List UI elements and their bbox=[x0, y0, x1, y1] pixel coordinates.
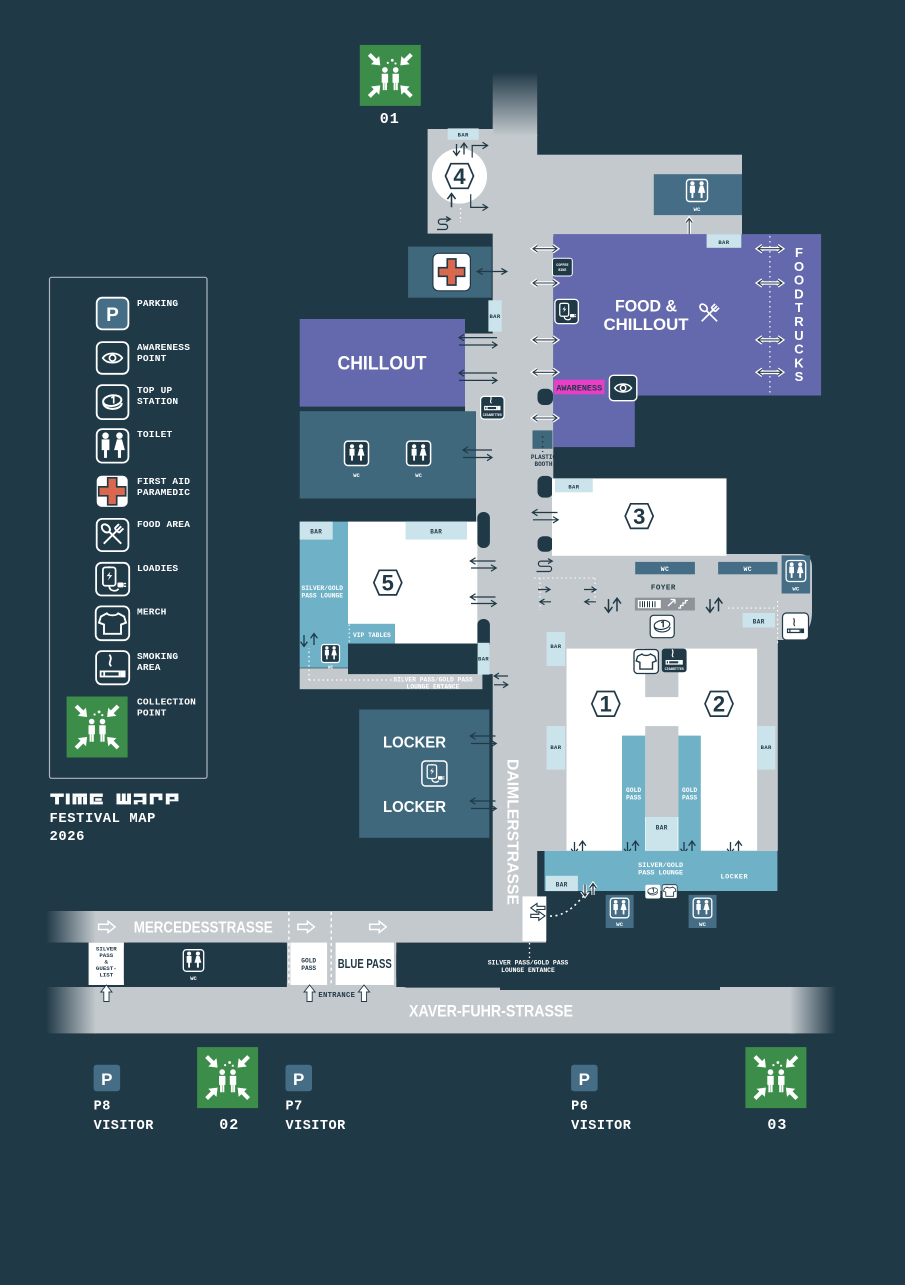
svg-text:BAR: BAR bbox=[753, 618, 765, 625]
svg-text:BAR: BAR bbox=[458, 132, 469, 139]
svg-text:BAR: BAR bbox=[550, 744, 561, 751]
svg-text:PARAMEDIC: PARAMEDIC bbox=[137, 487, 190, 498]
svg-text:P: P bbox=[101, 1070, 112, 1089]
svg-text:P8: P8 bbox=[94, 1100, 111, 1115]
svg-text:PASS: PASS bbox=[626, 794, 641, 801]
svg-text:BAR: BAR bbox=[310, 529, 322, 536]
svg-text:BAR: BAR bbox=[761, 744, 772, 751]
svg-text:PASS LOUNGE: PASS LOUNGE bbox=[638, 870, 683, 878]
svg-text:FOYER: FOYER bbox=[651, 584, 676, 592]
svg-text:O: O bbox=[794, 273, 804, 288]
svg-text:CIGARETTES: CIGARETTES bbox=[483, 413, 502, 417]
svg-text:WC: WC bbox=[699, 921, 706, 928]
svg-text:WC: WC bbox=[190, 975, 197, 982]
svg-text:POINT: POINT bbox=[137, 353, 167, 364]
svg-text:GOLD: GOLD bbox=[301, 958, 316, 965]
svg-text:SMOKING: SMOKING bbox=[137, 651, 178, 662]
svg-text:AWARENESS: AWARENESS bbox=[137, 342, 190, 353]
svg-text:02: 02 bbox=[219, 1117, 239, 1134]
svg-text:2: 2 bbox=[713, 692, 725, 717]
svg-text:BAR: BAR bbox=[478, 656, 489, 663]
svg-text:WC: WC bbox=[694, 206, 701, 213]
svg-text:VISITOR: VISITOR bbox=[94, 1119, 155, 1134]
svg-text:P: P bbox=[106, 305, 119, 326]
svg-text:POINT: POINT bbox=[137, 708, 167, 719]
svg-text:WC: WC bbox=[792, 586, 799, 593]
svg-text:GOLD: GOLD bbox=[682, 787, 697, 794]
svg-text:TOP UP: TOP UP bbox=[137, 385, 173, 396]
svg-text:T: T bbox=[795, 300, 803, 315]
svg-text:C: C bbox=[794, 342, 804, 357]
svg-text:P7: P7 bbox=[286, 1100, 303, 1115]
svg-text:LOADIES: LOADIES bbox=[137, 563, 178, 574]
svg-text:BAR: BAR bbox=[718, 239, 729, 246]
svg-text:VISITOR: VISITOR bbox=[286, 1119, 347, 1134]
svg-text:BLUE PASS: BLUE PASS bbox=[338, 956, 392, 971]
svg-text:WC: WC bbox=[328, 667, 334, 671]
svg-text:PASS LOUNGE: PASS LOUNGE bbox=[302, 593, 344, 600]
svg-text:MERCEDESSTRASSE: MERCEDESSTRASSE bbox=[134, 920, 273, 937]
svg-text:TOILET: TOILET bbox=[137, 429, 173, 440]
svg-text:CHILLOUT: CHILLOUT bbox=[604, 315, 690, 334]
svg-text:P: P bbox=[579, 1070, 590, 1089]
svg-text:P6: P6 bbox=[571, 1100, 588, 1115]
svg-text:XAVER-FUHR-STRASSE: XAVER-FUHR-STRASSE bbox=[409, 1003, 573, 1021]
svg-text:GOLD: GOLD bbox=[626, 787, 641, 794]
svg-text:5: 5 bbox=[382, 570, 394, 595]
svg-text:SILVER PASS/GOLD PASS: SILVER PASS/GOLD PASS bbox=[393, 676, 473, 683]
svg-text:AWARENESS: AWARENESS bbox=[556, 384, 602, 394]
svg-text:FOOD &: FOOD & bbox=[615, 297, 677, 316]
svg-text:STATION: STATION bbox=[137, 396, 178, 407]
svg-text:01: 01 bbox=[380, 111, 400, 128]
svg-text:K: K bbox=[794, 355, 804, 370]
svg-text:VISITOR: VISITOR bbox=[571, 1119, 632, 1134]
svg-text:CHILLOUT: CHILLOUT bbox=[338, 354, 427, 375]
svg-text:R: R bbox=[794, 314, 804, 329]
svg-text:FESTIVAL MAP: FESTIVAL MAP bbox=[50, 812, 157, 827]
svg-text:WC: WC bbox=[616, 921, 623, 928]
svg-text:PASS: PASS bbox=[682, 794, 697, 801]
svg-text:D: D bbox=[794, 286, 803, 301]
svg-text:F: F bbox=[795, 245, 803, 260]
svg-text:PLASTIC: PLASTIC bbox=[531, 454, 557, 461]
svg-text:WC: WC bbox=[353, 472, 360, 479]
svg-text:SILVER/GOLD: SILVER/GOLD bbox=[302, 585, 344, 592]
svg-text:4: 4 bbox=[453, 164, 466, 189]
svg-text:LOUNGE ENTANCE: LOUNGE ENTANCE bbox=[407, 684, 460, 691]
svg-text:2026: 2026 bbox=[50, 830, 86, 845]
svg-text:PARKING: PARKING bbox=[137, 298, 178, 309]
svg-text:COLLECTION: COLLECTION bbox=[137, 697, 196, 708]
svg-text:SILVER PASS/GOLD PASS: SILVER PASS/GOLD PASS bbox=[488, 960, 569, 967]
svg-text:ENTRANCE: ENTRANCE bbox=[318, 992, 355, 1000]
svg-text:LOCKER: LOCKER bbox=[383, 735, 446, 752]
svg-text:U: U bbox=[794, 328, 803, 343]
svg-text:FIRST AID: FIRST AID bbox=[137, 476, 190, 487]
svg-text:LOCKER: LOCKER bbox=[721, 874, 749, 882]
svg-text:BAR: BAR bbox=[489, 313, 500, 320]
svg-text:CIGARETTES: CIGARETTES bbox=[665, 667, 684, 671]
svg-text:BAR: BAR bbox=[568, 483, 579, 490]
svg-text:BAR: BAR bbox=[550, 643, 561, 650]
svg-text:WC: WC bbox=[743, 566, 752, 573]
svg-text:BIKE: BIKE bbox=[558, 269, 566, 273]
svg-text:LIST: LIST bbox=[99, 972, 113, 979]
svg-text:O: O bbox=[794, 259, 804, 274]
svg-text:BAR: BAR bbox=[556, 881, 568, 888]
svg-text:DAIMLERSTRASSE: DAIMLERSTRASSE bbox=[504, 759, 521, 905]
svg-text:S: S bbox=[795, 369, 804, 384]
svg-text:LOUNGE ENTANCE: LOUNGE ENTANCE bbox=[501, 967, 555, 974]
svg-text:PASS: PASS bbox=[301, 965, 316, 972]
svg-text:WC: WC bbox=[415, 472, 422, 479]
svg-text:AREA: AREA bbox=[137, 662, 161, 673]
svg-text:VIP TABLES: VIP TABLES bbox=[353, 632, 391, 639]
svg-text:LOCKER: LOCKER bbox=[383, 799, 446, 816]
svg-text:BAR: BAR bbox=[430, 529, 442, 536]
svg-text:WC: WC bbox=[661, 566, 670, 573]
svg-text:03: 03 bbox=[767, 1117, 787, 1134]
svg-text:BOOTH: BOOTH bbox=[534, 461, 552, 468]
svg-text:COFFEE: COFFEE bbox=[556, 264, 568, 268]
svg-text:FOOD AREA: FOOD AREA bbox=[137, 519, 190, 530]
svg-text:BAR: BAR bbox=[656, 825, 668, 832]
svg-text:1: 1 bbox=[600, 692, 612, 717]
svg-text:3: 3 bbox=[633, 504, 645, 529]
svg-text:P: P bbox=[293, 1070, 304, 1089]
svg-text:MERCH: MERCH bbox=[137, 607, 167, 618]
